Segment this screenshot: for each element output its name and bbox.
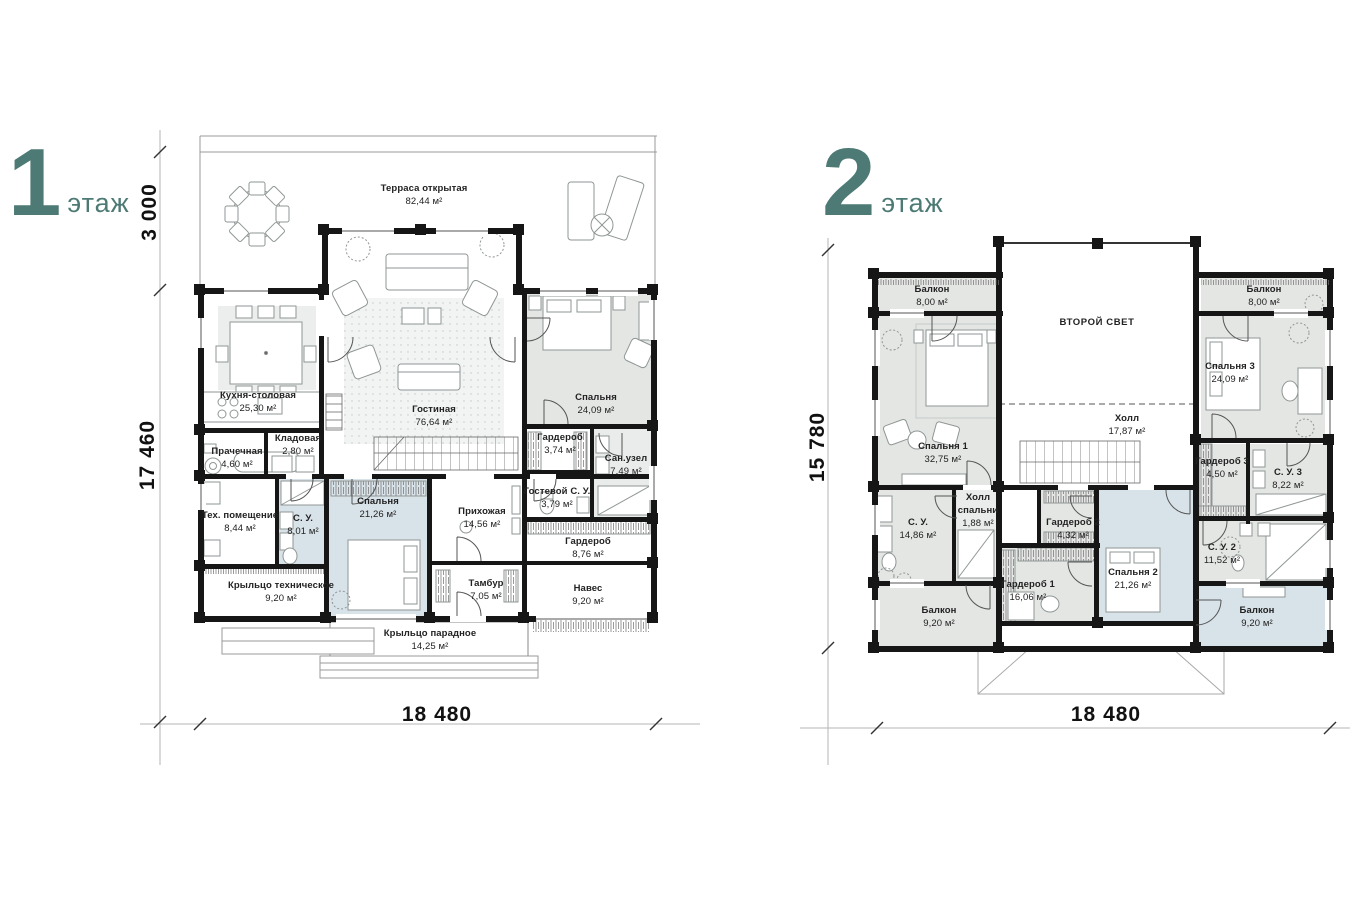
floor1-title: 1 этаж: [8, 146, 130, 221]
floor1-dim-terrace-depth: 3 000: [138, 183, 162, 241]
room-label-balcony-br: Балкон9,20 м²: [1240, 605, 1275, 631]
room-label-guest-wc: Гостевой С. У.3,79 м²: [524, 486, 591, 512]
floor2-title: 2 этаж: [822, 146, 944, 221]
floor1-dim-height: 17 460: [136, 420, 160, 490]
room-label-sanuzel: Сан.узел7,49 м²: [605, 453, 648, 479]
floor2-title-word: этаж: [881, 188, 943, 219]
room-label-wardrobe-876: Гардероб8,76 м²: [565, 536, 611, 562]
room-label-bedroom-hall: Холл спальни1,88 м²: [949, 492, 1007, 530]
room-label-balcony-tl: Балкон8,00 м²: [915, 284, 950, 310]
room-label-laundry: Прачечная4,60 м²: [211, 446, 262, 472]
room-label-bedroom-24: Спальня24,09 м²: [575, 392, 617, 418]
floor2-dim-width: 18 480: [1071, 703, 1141, 727]
room-label-bedroom-1: Спальня 132,75 м²: [918, 441, 968, 467]
room-label-wc-2: С. У. 211,52 м²: [1204, 542, 1240, 568]
room-label-naves: Навес9,20 м²: [572, 583, 604, 609]
room-label-tech: Тех. помещение8,44 м²: [202, 510, 278, 536]
room-label-bedroom-2126: Спальня21,26 м²: [357, 496, 399, 522]
room-label-storage: Кладовая2,80 м²: [275, 433, 321, 459]
floor1-title-number: 1: [8, 146, 61, 221]
room-label-porch-main: Крыльцо парадное14,25 м²: [384, 628, 476, 654]
floorplan-page: 1 этаж 2 этаж 3 000 17 460 18 480 15 780…: [0, 0, 1360, 900]
room-label-wc-801: С. У.8,01 м²: [287, 513, 319, 539]
room-label-wc-1486: С. У.14,86 м²: [900, 517, 937, 543]
floor2-title-number: 2: [822, 146, 875, 221]
room-label-balcony-bl: Балкон9,20 м²: [922, 605, 957, 631]
room-label-hallway: Прихожая14,56 м²: [458, 506, 506, 532]
floor2-plan: [800, 236, 1350, 765]
room-label-wc-3: С. У. 38,22 м²: [1272, 467, 1304, 493]
room-label-wardrobe-2: Гардероб 24,32 м²: [1046, 517, 1100, 543]
room-label-terrace: Терраса открытая82,44 м²: [381, 183, 468, 209]
room-label-wardrobe-3: Гардероб 34,50 м²: [1195, 456, 1249, 482]
floor2-dim-height: 15 780: [806, 412, 830, 482]
room-label-wardrobe-1: Гардероб 116,06 м²: [1001, 579, 1055, 605]
floor1-title-word: этаж: [67, 188, 129, 219]
floorplan-drawing: [0, 0, 1360, 900]
room-label-tambur: Тамбур7,05 м²: [468, 578, 503, 604]
room-label-wardrobe-374: Гардероб3,74 м²: [537, 432, 583, 458]
room-label-porch-tech: Крыльцо техническое9,20 м²: [228, 580, 334, 606]
room-label-balcony-tr: Балкон8,00 м²: [1247, 284, 1282, 310]
floor1-dim-width: 18 480: [402, 703, 472, 727]
room-label-hall: Холл17,87 м²: [1109, 413, 1146, 439]
room-label-kitchen-dining: Кухня-столовая25,30 м²: [220, 390, 296, 416]
room-label-bedroom-2: Спальня 221,26 м²: [1108, 567, 1158, 593]
room-label-second-light: ВТОРОЙ СВЕТ: [1060, 317, 1135, 330]
room-label-living: Гостиная76,64 м²: [412, 404, 456, 430]
room-label-bedroom-3: Спальня 324,09 м²: [1205, 361, 1255, 387]
